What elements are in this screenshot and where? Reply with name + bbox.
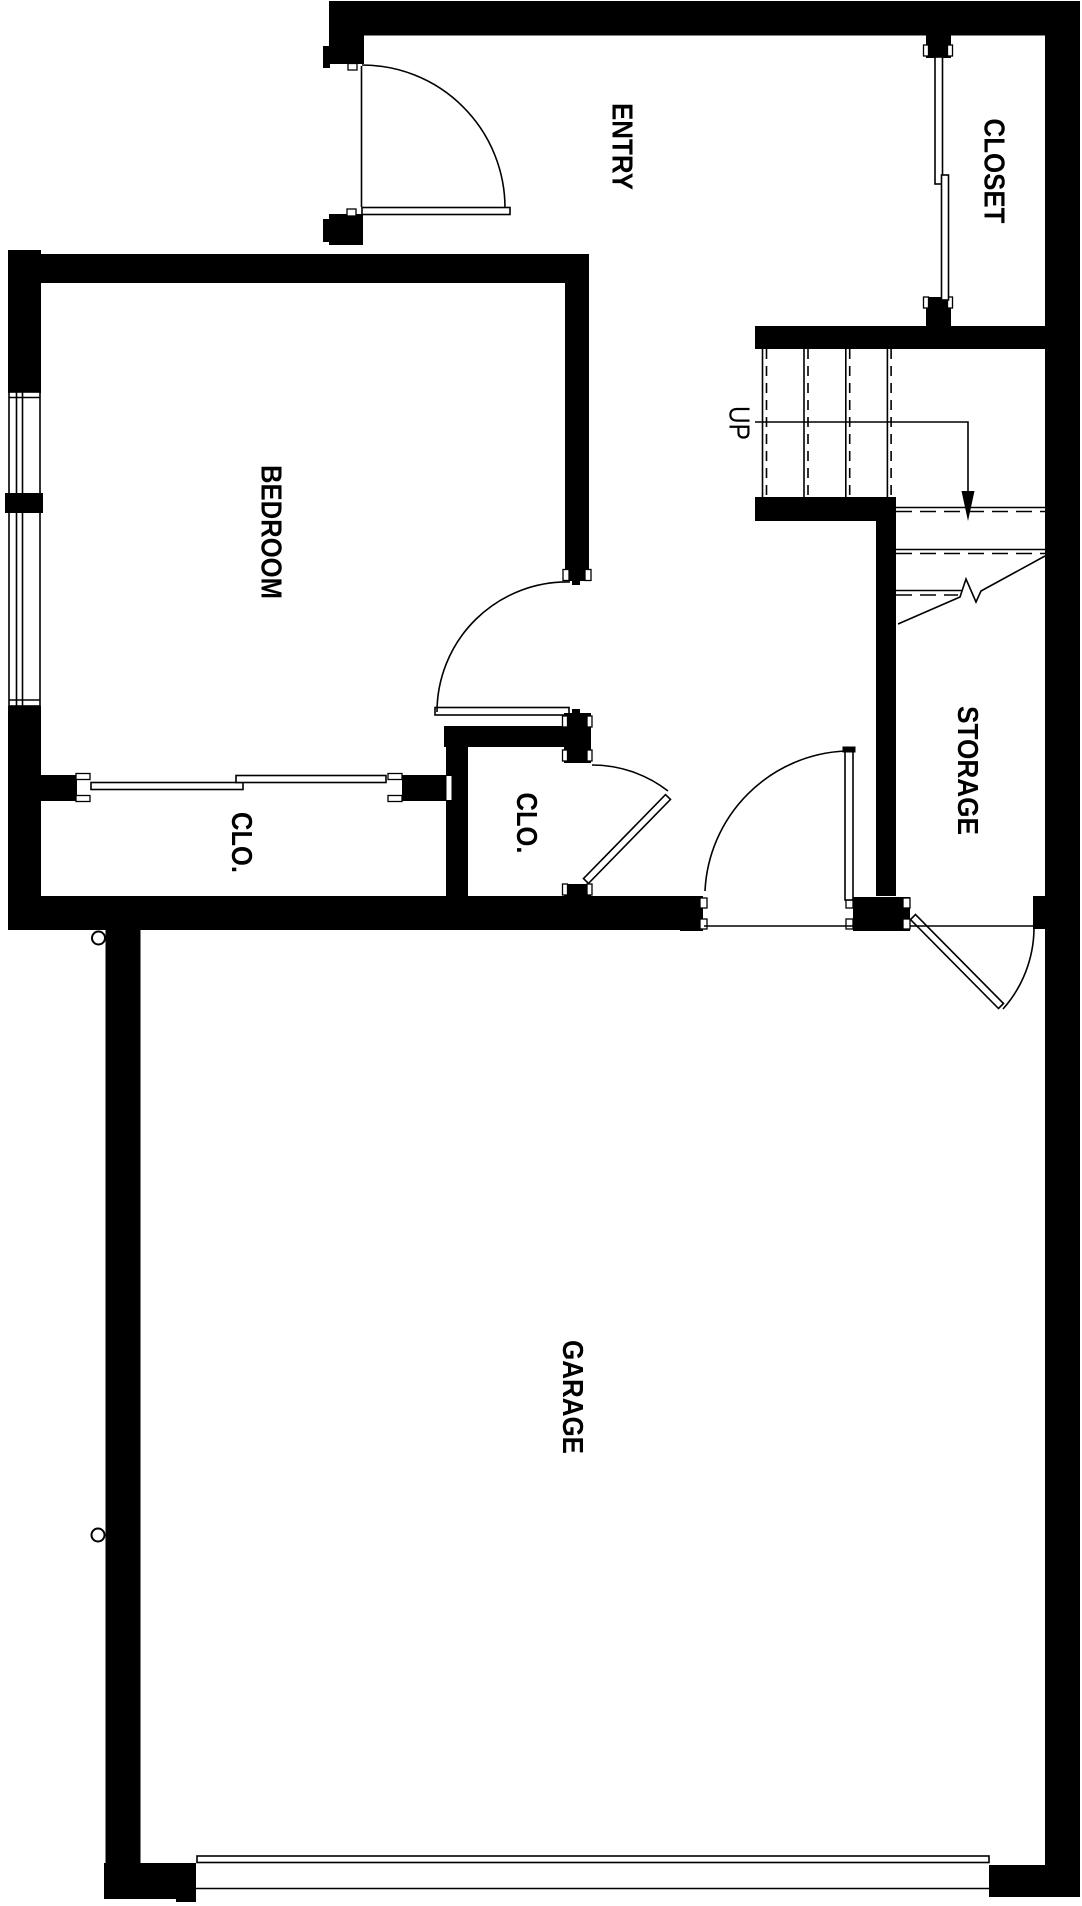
svg-text:BEDROOM: BEDROOM [255,465,287,599]
svg-text:ENTRY: ENTRY [606,103,638,190]
svg-text:STORAGE: STORAGE [951,706,983,835]
svg-text:GARAGE: GARAGE [556,1340,588,1454]
svg-text:CLO.: CLO. [510,793,542,854]
svg-text:UP: UP [723,406,755,440]
svg-text:CLOSET: CLOSET [978,119,1010,224]
svg-text:CLO.: CLO. [225,812,257,873]
